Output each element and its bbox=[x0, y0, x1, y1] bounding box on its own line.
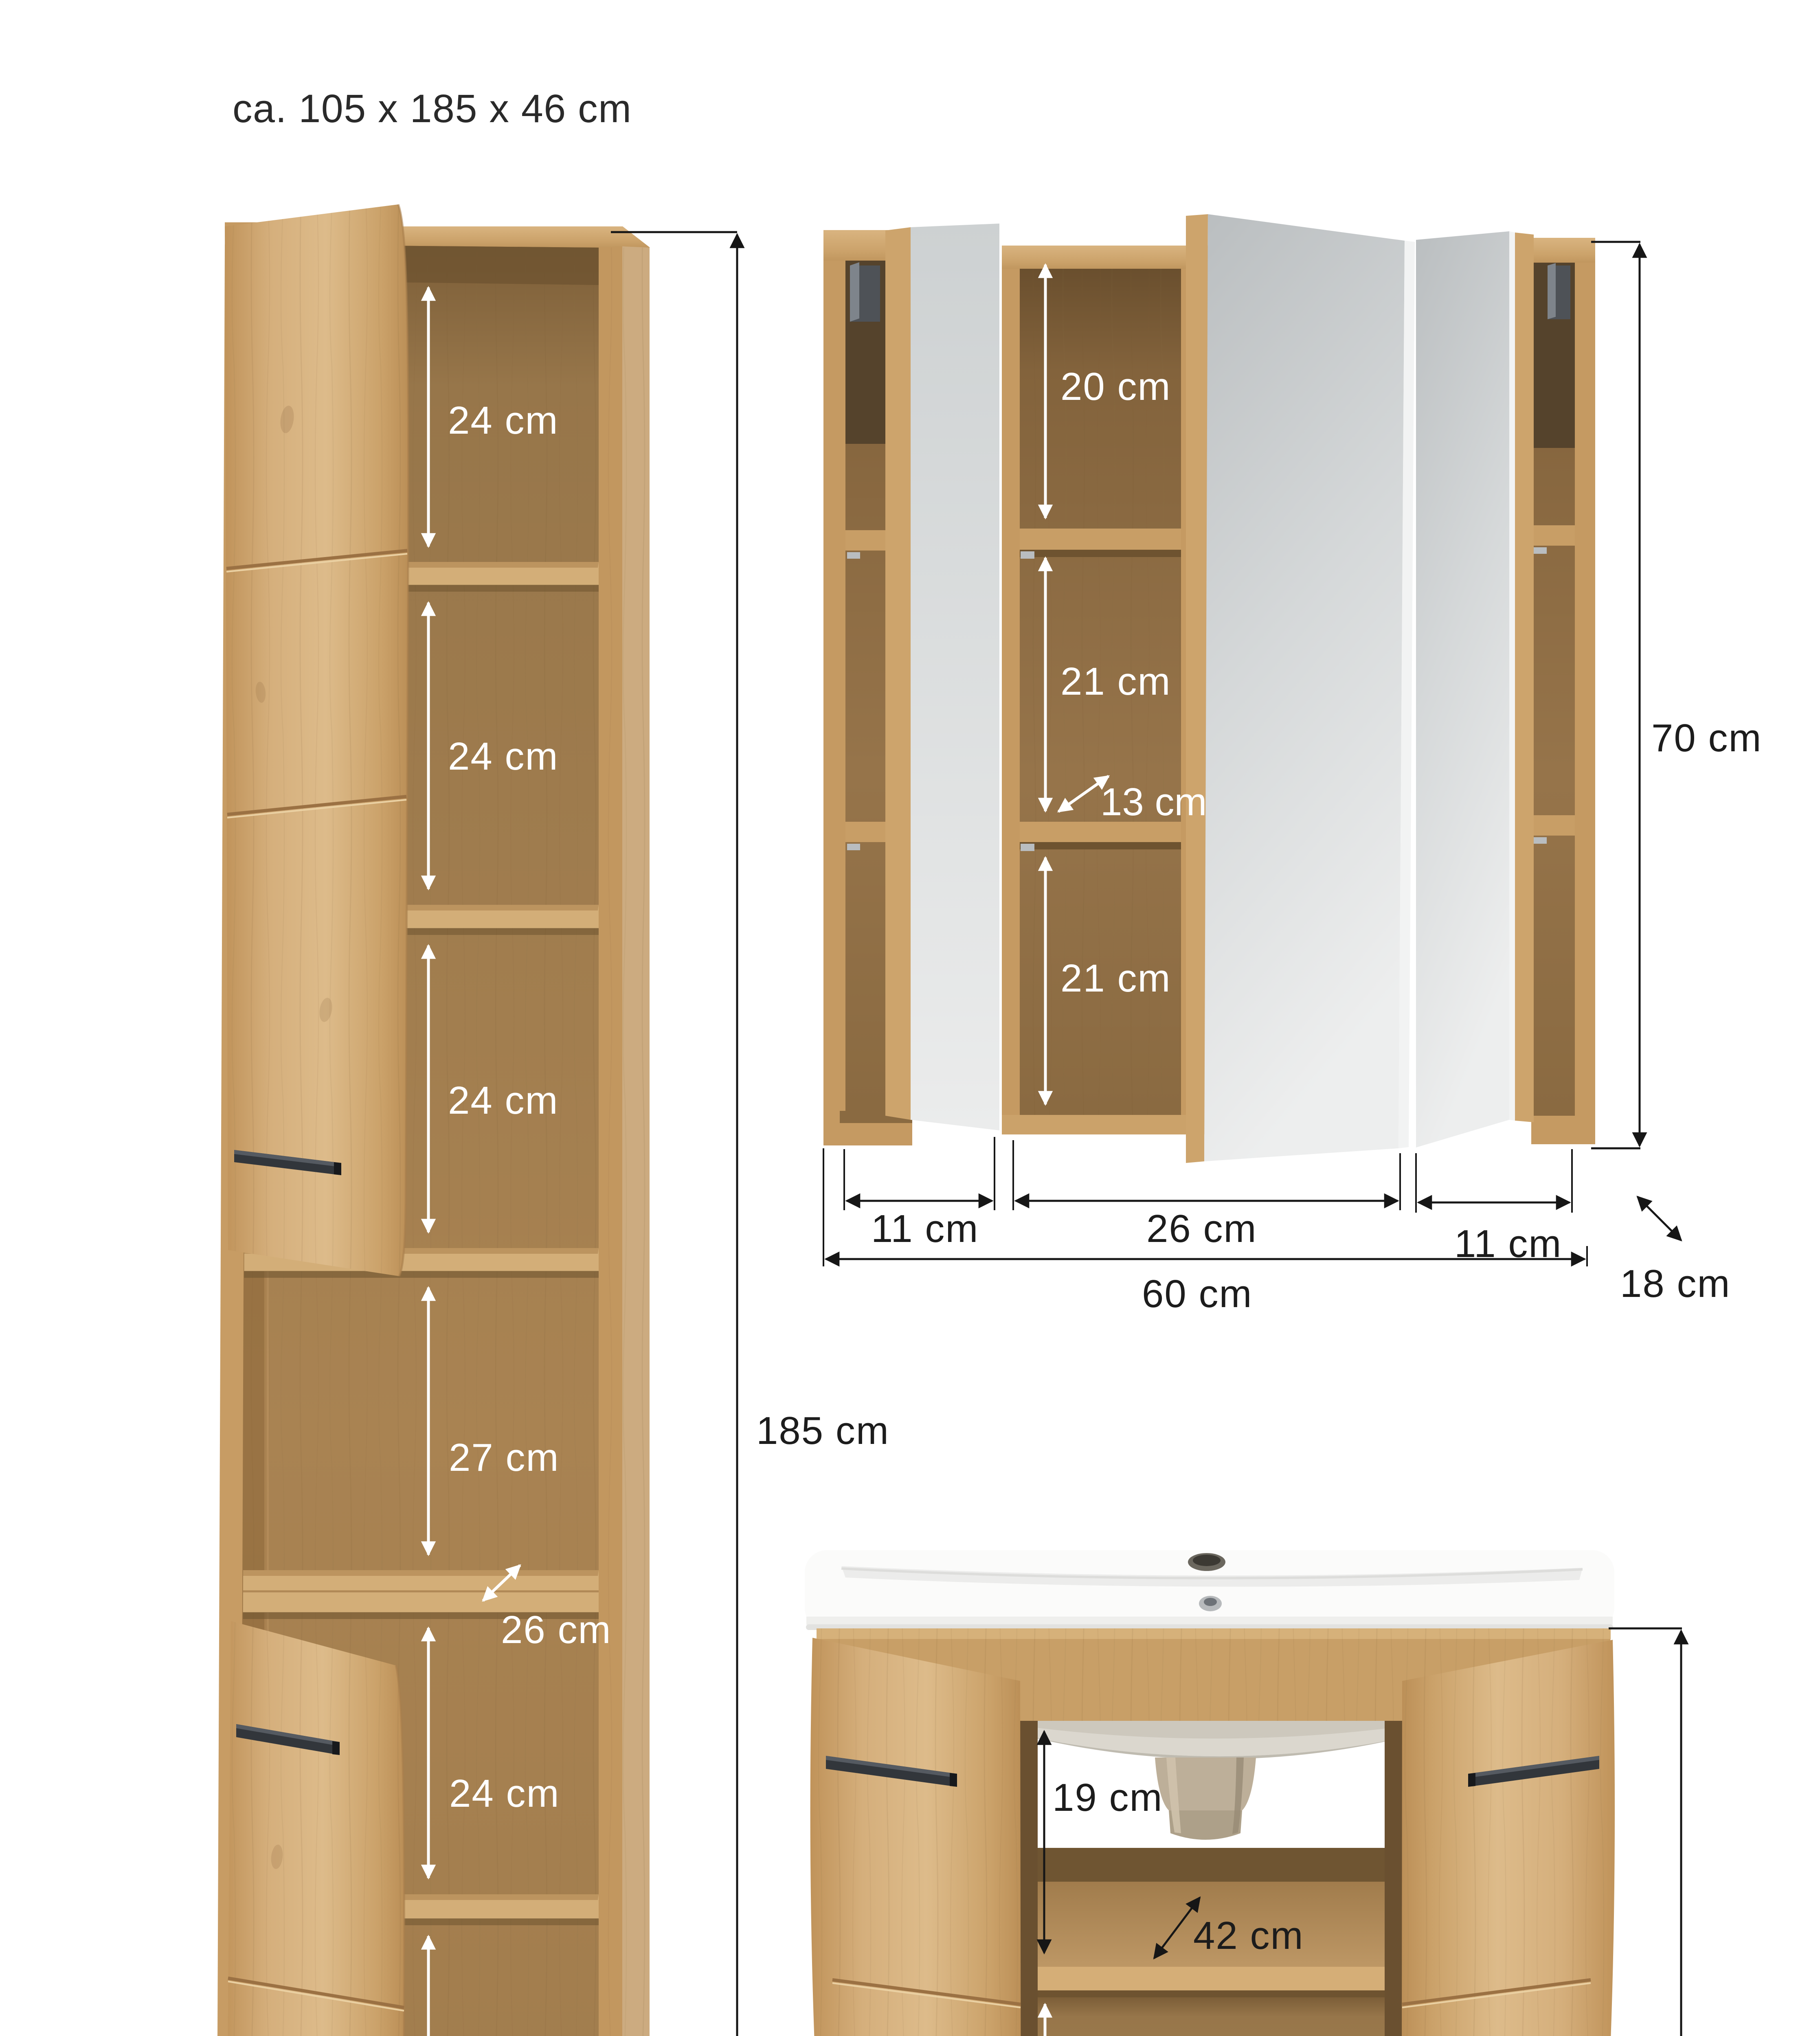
svg-text:26 cm: 26 cm bbox=[1146, 1207, 1257, 1251]
svg-text:21 cm: 21 cm bbox=[1060, 660, 1171, 703]
svg-text:26 cm: 26 cm bbox=[501, 1608, 611, 1652]
svg-text:13 cm: 13 cm bbox=[1100, 780, 1207, 824]
svg-text:19 cm: 19 cm bbox=[1052, 1776, 1163, 1819]
svg-text:60 cm: 60 cm bbox=[1142, 1272, 1252, 1316]
svg-text:185 cm: 185 cm bbox=[756, 1409, 889, 1452]
svg-text:70 cm: 70 cm bbox=[1651, 716, 1762, 760]
svg-text:24 cm: 24 cm bbox=[448, 1079, 558, 1122]
svg-text:42 cm: 42 cm bbox=[1193, 1914, 1304, 1957]
svg-text:21 cm: 21 cm bbox=[1060, 957, 1171, 1000]
svg-text:24 cm: 24 cm bbox=[448, 399, 558, 442]
svg-text:11 cm: 11 cm bbox=[871, 1207, 979, 1251]
svg-text:20 cm: 20 cm bbox=[1060, 365, 1171, 408]
svg-text:ca. 105 x 185 x 46 cm: ca. 105 x 185 x 46 cm bbox=[233, 86, 632, 131]
svg-text:24 cm: 24 cm bbox=[448, 735, 558, 778]
svg-text:18 cm: 18 cm bbox=[1620, 1262, 1730, 1305]
svg-text:27 cm: 27 cm bbox=[449, 1436, 559, 1479]
svg-text:24 cm: 24 cm bbox=[449, 1772, 560, 1815]
